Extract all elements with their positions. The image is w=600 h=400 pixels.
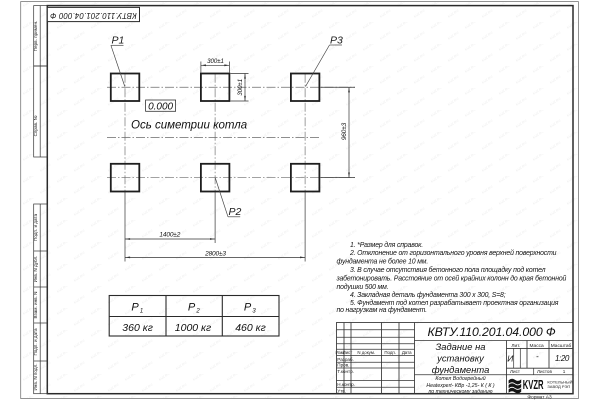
svg-text:Подп. и дата: Подп. и дата bbox=[33, 214, 38, 242]
svg-text:1: 1 bbox=[140, 309, 143, 315]
svg-text:360 кг: 360 кг bbox=[122, 322, 153, 334]
svg-text:Лист: Лист bbox=[510, 369, 521, 374]
svg-text:Лит.: Лит. bbox=[511, 343, 520, 349]
svg-text:ЗАВОД РЭП: ЗАВОД РЭП bbox=[547, 384, 570, 389]
svg-text:по нагрузкам на фундамент.: по нагрузкам на фундамент. bbox=[337, 306, 428, 314]
svg-text:1. *Размер для справок.: 1. *Размер для справок. bbox=[350, 241, 423, 249]
svg-text:300±1: 300±1 bbox=[207, 58, 224, 65]
svg-text:2. Отклонение от горизонтальн: 2. Отклонение от горизонтального уровня … bbox=[349, 249, 557, 257]
svg-text:Справ. №: Справ. № bbox=[33, 116, 38, 137]
svg-text:фундамента не более 10 мм.: фундамента не более 10 мм. bbox=[337, 258, 429, 266]
svg-text:N докум.: N докум. bbox=[357, 350, 375, 355]
svg-text:Масса: Масса bbox=[530, 343, 545, 349]
svg-text:300±1: 300±1 bbox=[237, 79, 244, 96]
svg-text:Разраб.: Разраб. bbox=[337, 357, 354, 362]
svg-text:-: - bbox=[536, 352, 539, 361]
svg-text:1: 1 bbox=[563, 369, 566, 374]
svg-text:2: 2 bbox=[195, 309, 200, 315]
svg-text:1000 кг: 1000 кг bbox=[175, 322, 211, 334]
svg-text:Листов: Листов bbox=[537, 369, 552, 374]
svg-text:забетонировать. Расстояние от: забетонировать. Расстояние от осей крайн… bbox=[336, 274, 567, 282]
svg-text:1:20: 1:20 bbox=[555, 354, 570, 363]
svg-text:установку: установку bbox=[436, 352, 485, 363]
svg-text:Н.контр.: Н.контр. bbox=[337, 382, 355, 387]
svg-text:Взам. инв. N: Взам. инв. N bbox=[33, 292, 38, 319]
svg-text:КВТУ.110.201.04.000 Ф: КВТУ.110.201.04.000 Ф bbox=[427, 325, 555, 339]
svg-text:960±3: 960±3 bbox=[341, 122, 348, 140]
svg-text:460 кг: 460 кг bbox=[235, 322, 266, 334]
svg-text:Утв.: Утв. bbox=[337, 388, 346, 393]
svg-text:Ось симетрии котла: Ось симетрии котла bbox=[131, 120, 247, 132]
svg-text:Пров.: Пров. bbox=[337, 363, 349, 368]
svg-text:P3: P3 bbox=[330, 34, 343, 46]
svg-text:1400±2: 1400±2 bbox=[159, 231, 180, 238]
svg-text:3. В случае отсутствия бетонн: 3. В случае отсутствия бетонного пола пл… bbox=[350, 266, 546, 274]
svg-text:по техническому заданию: по техническому заданию bbox=[428, 389, 492, 395]
svg-text:P: P bbox=[188, 302, 196, 314]
svg-text:P2: P2 bbox=[229, 206, 242, 218]
svg-text:Формат А3: Формат А3 bbox=[527, 394, 552, 400]
svg-text:Heatexpert- КВр -1,25- К ( К ): Heatexpert- КВр -1,25- К ( К ) bbox=[426, 383, 495, 389]
svg-text:2800±3: 2800±3 bbox=[204, 251, 226, 258]
svg-text:Инв. N подл.: Инв. N подл. bbox=[33, 363, 38, 390]
svg-text:Масштаб: Масштаб bbox=[551, 343, 572, 349]
svg-text:5. Фундамент под котел разраб: 5. Фундамент под котел разрабатывает про… bbox=[350, 299, 559, 307]
svg-text:подушки 500 мм.: подушки 500 мм. bbox=[337, 283, 389, 291]
svg-text:0.000: 0.000 bbox=[148, 101, 173, 112]
svg-text:Перв. примен.: Перв. примен. bbox=[33, 21, 38, 52]
svg-text:Дата: Дата bbox=[402, 350, 412, 355]
svg-text:фундамента: фундамента bbox=[432, 364, 490, 375]
svg-text:Подп. и дата: Подп. и дата bbox=[33, 328, 38, 356]
svg-text:P: P bbox=[244, 302, 252, 314]
svg-text:Подп.: Подп. bbox=[384, 350, 396, 355]
svg-text:P: P bbox=[131, 302, 139, 314]
svg-text:Инв. N дубл.: Инв. N дубл. bbox=[33, 256, 38, 283]
svg-text:Лист: Лист bbox=[343, 350, 353, 355]
svg-text:Котел Водогрейный: Котел Водогрейный bbox=[435, 375, 485, 382]
svg-text:Задание на: Задание на bbox=[436, 341, 486, 352]
svg-text:Т.контр.: Т.контр. bbox=[337, 369, 354, 374]
svg-text:КВТУ.110.201.04.000 Ф: КВТУ.110.201.04.000 Ф bbox=[50, 11, 137, 20]
svg-text:И: И bbox=[507, 354, 514, 364]
svg-text:4. Закладная деталь фундамент: 4. Закладная деталь фундамента 300 х 300… bbox=[350, 291, 506, 299]
svg-text:P1: P1 bbox=[112, 35, 125, 47]
svg-text:KVZR: KVZR bbox=[523, 377, 544, 392]
